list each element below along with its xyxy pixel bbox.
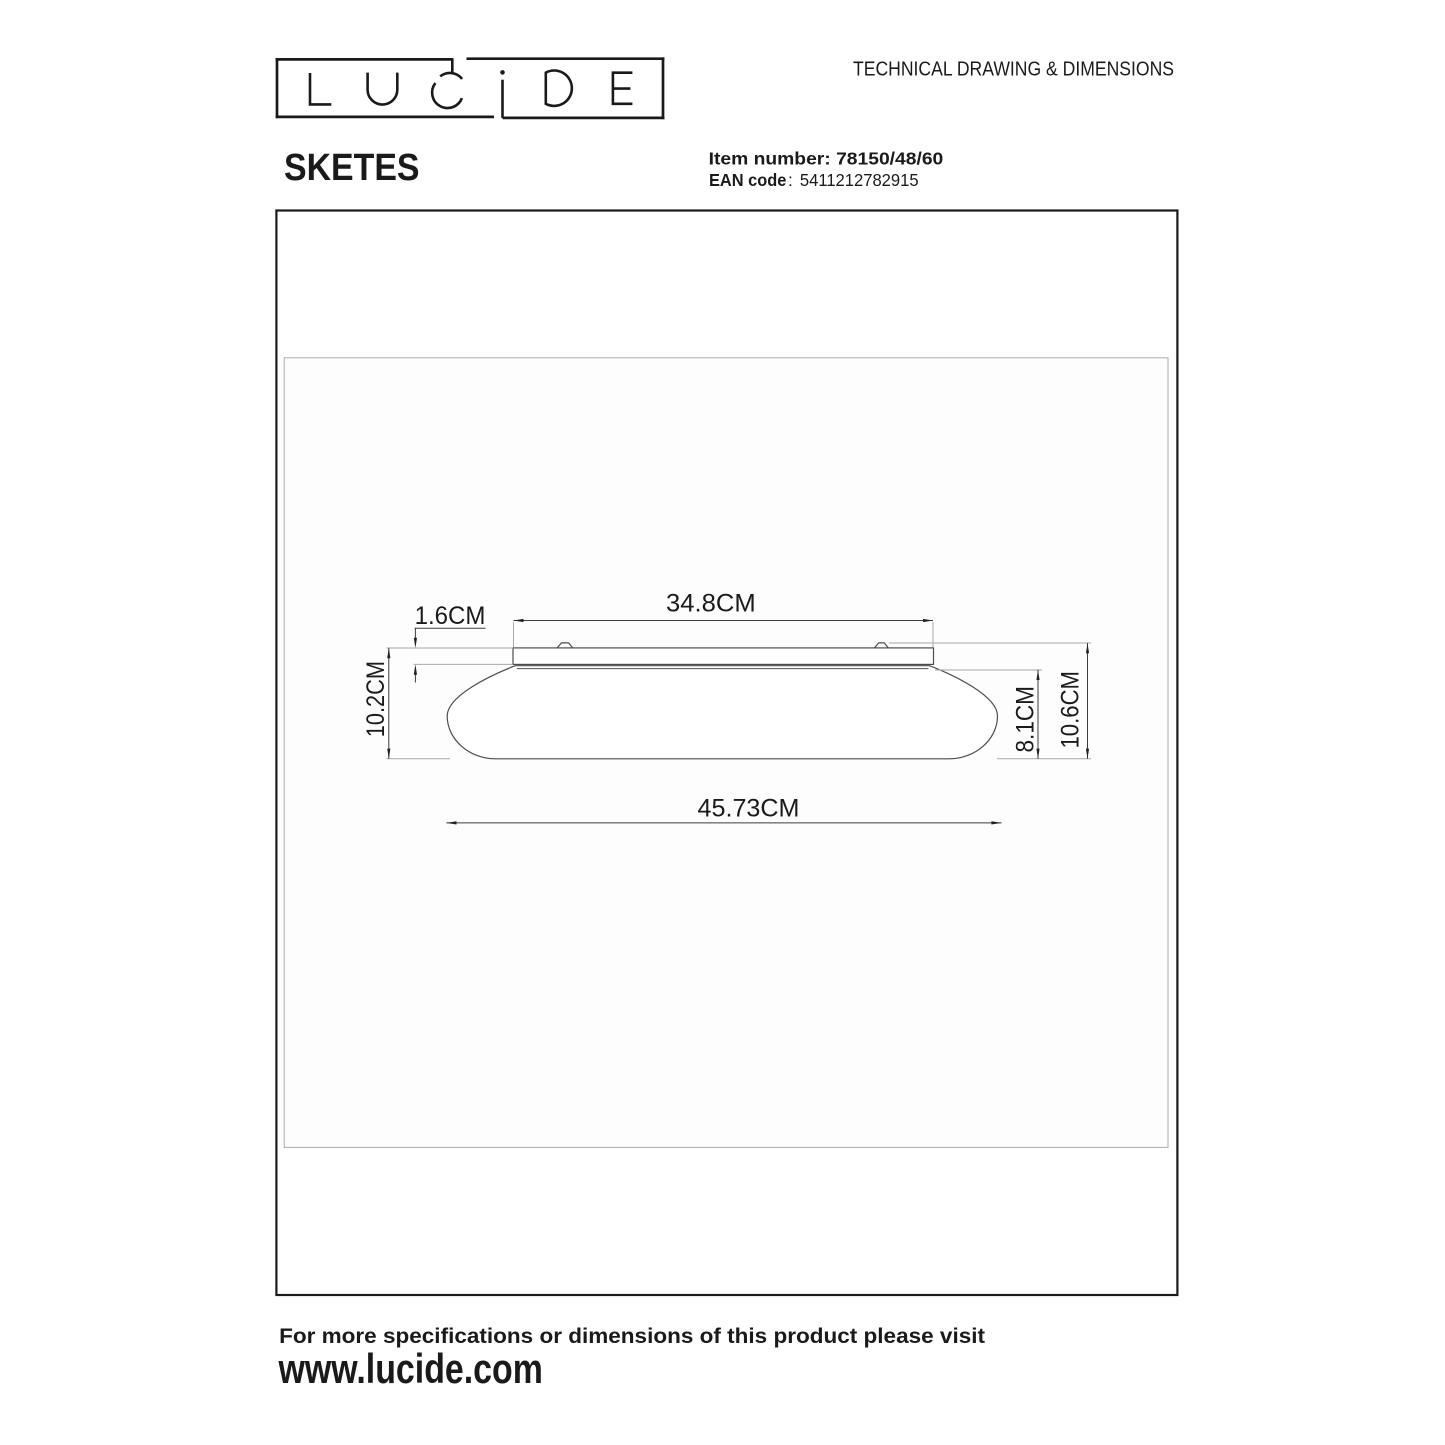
svg-text:34.8CM: 34.8CM <box>666 590 756 618</box>
svg-text:10.2CM: 10.2CM <box>362 661 390 737</box>
svg-text:TECHNICAL DRAWING & DIMENSIONS: TECHNICAL DRAWING & DIMENSIONS <box>853 58 1174 80</box>
svg-text:10.6CM: 10.6CM <box>1057 671 1085 749</box>
svg-text:1.6CM: 1.6CM <box>415 602 486 630</box>
svg-text:5411212782915: 5411212782915 <box>800 170 919 190</box>
svg-text:45.73CM: 45.73CM <box>698 795 800 823</box>
svg-text:SKETES: SKETES <box>284 146 420 189</box>
svg-text:8.1CM: 8.1CM <box>1012 686 1040 753</box>
svg-text::: : <box>788 170 793 190</box>
svg-text:Item number: 78150/48/60: Item number: 78150/48/60 <box>709 148 944 168</box>
svg-text:www.lucide.com: www.lucide.com <box>278 1345 543 1392</box>
svg-text:EAN code: EAN code <box>709 170 787 190</box>
